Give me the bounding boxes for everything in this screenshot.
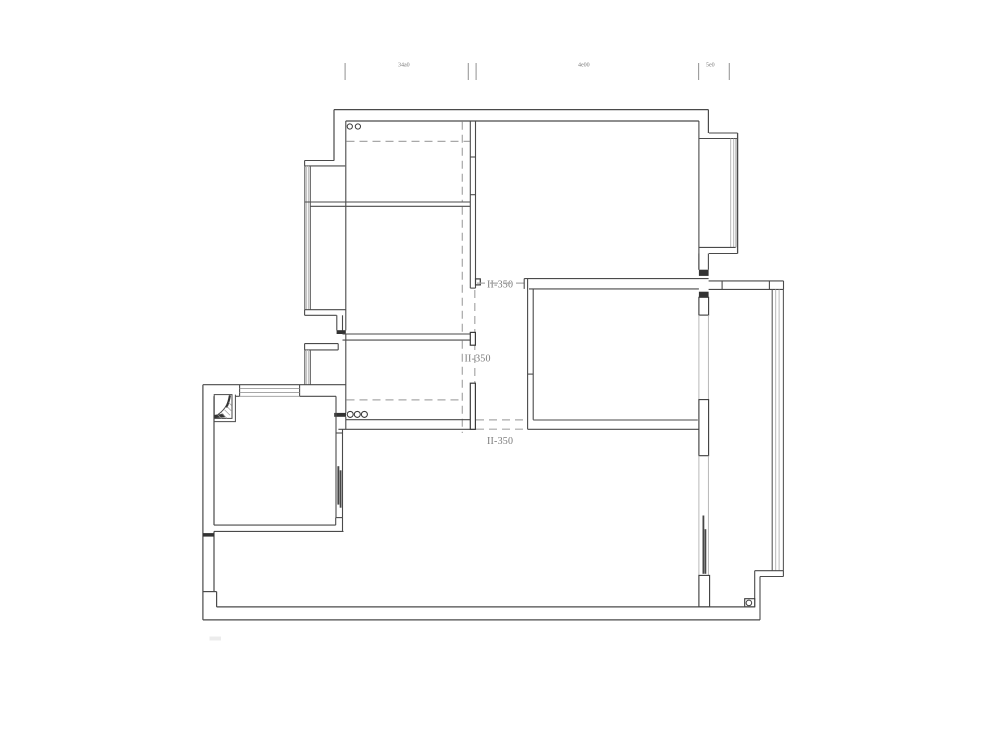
svg-text:4e00: 4e00 — [578, 63, 590, 69]
svg-text:34a0: 34a0 — [398, 63, 410, 69]
svg-text:II-350: II-350 — [487, 280, 513, 291]
svg-text:II-350: II-350 — [465, 354, 491, 365]
svg-text:5e0: 5e0 — [706, 63, 715, 69]
svg-text:II-350: II-350 — [487, 436, 513, 447]
